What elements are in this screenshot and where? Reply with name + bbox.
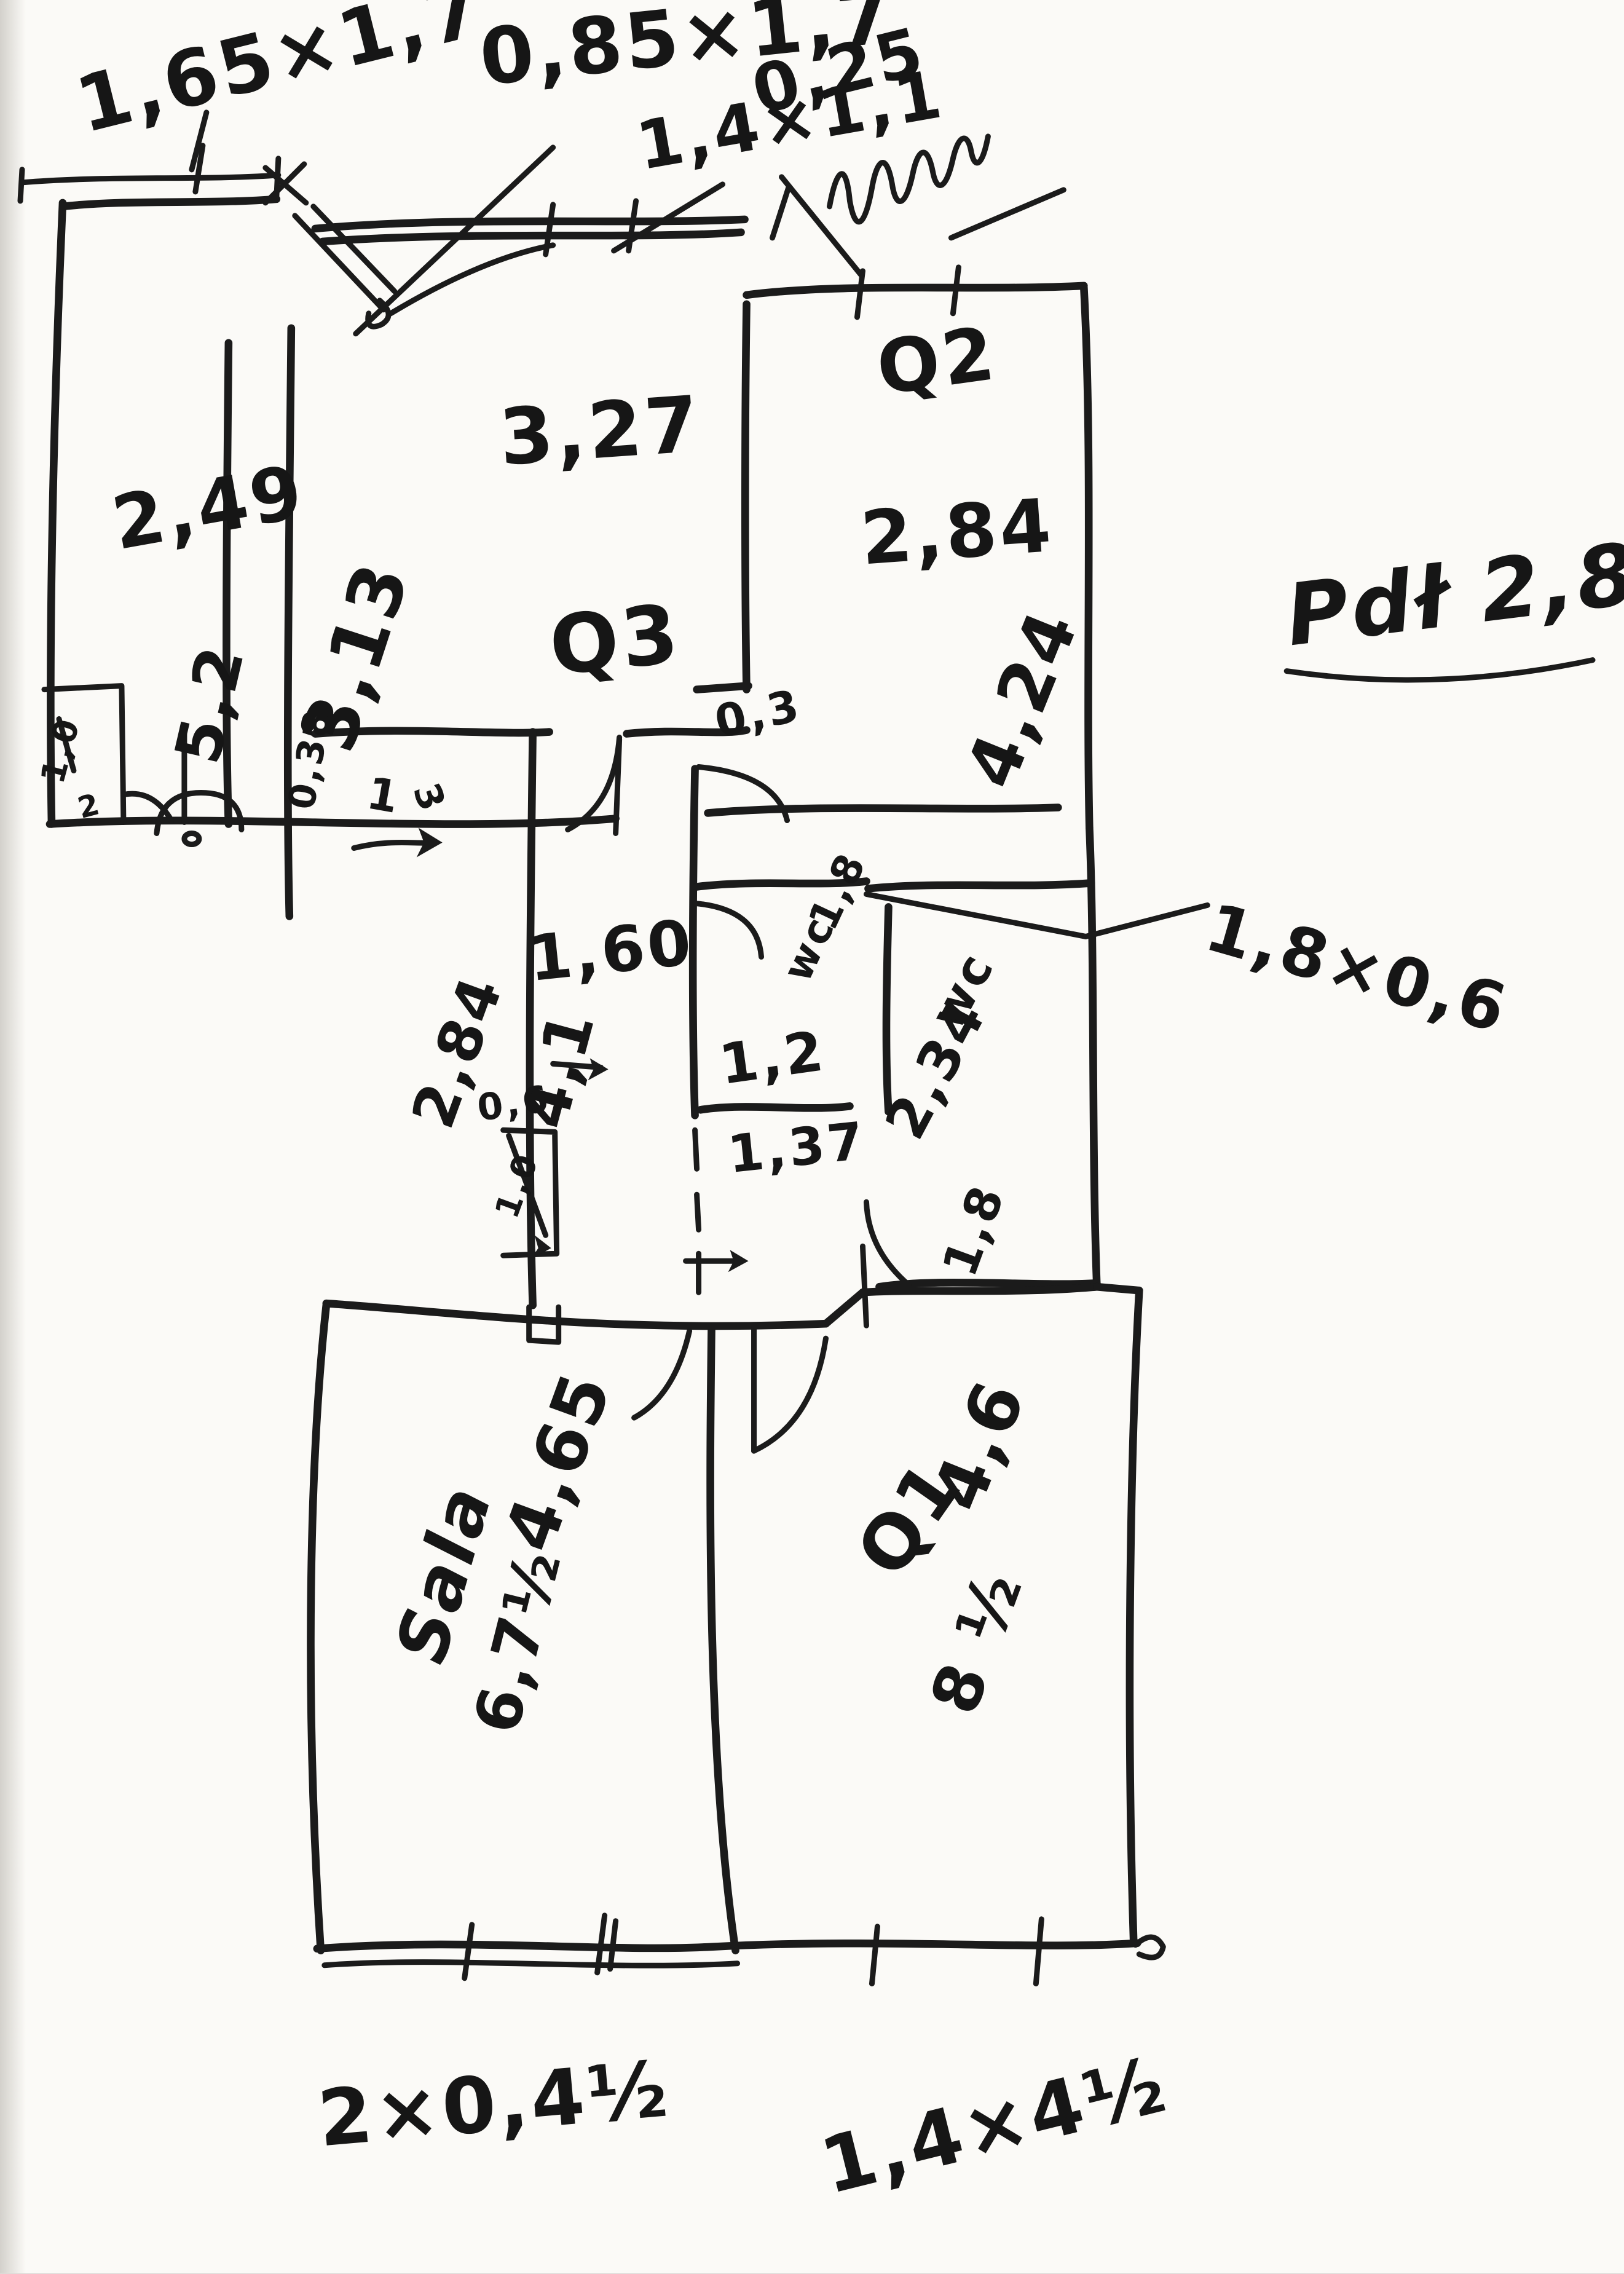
floor-plan-sketch: 1,65×1,7 0,85×1,7 1,4×1,1 0,25 2,49 5,2 … — [0, 0, 1624, 2273]
label-q2-width: 2,84 — [858, 483, 1057, 582]
label-q3-width: 3,27 — [497, 379, 704, 483]
label-q3-name: Q3 — [545, 587, 685, 694]
paper-edge-shadow — [0, 0, 26, 2273]
label-q2-name: Q2 — [872, 311, 1002, 413]
